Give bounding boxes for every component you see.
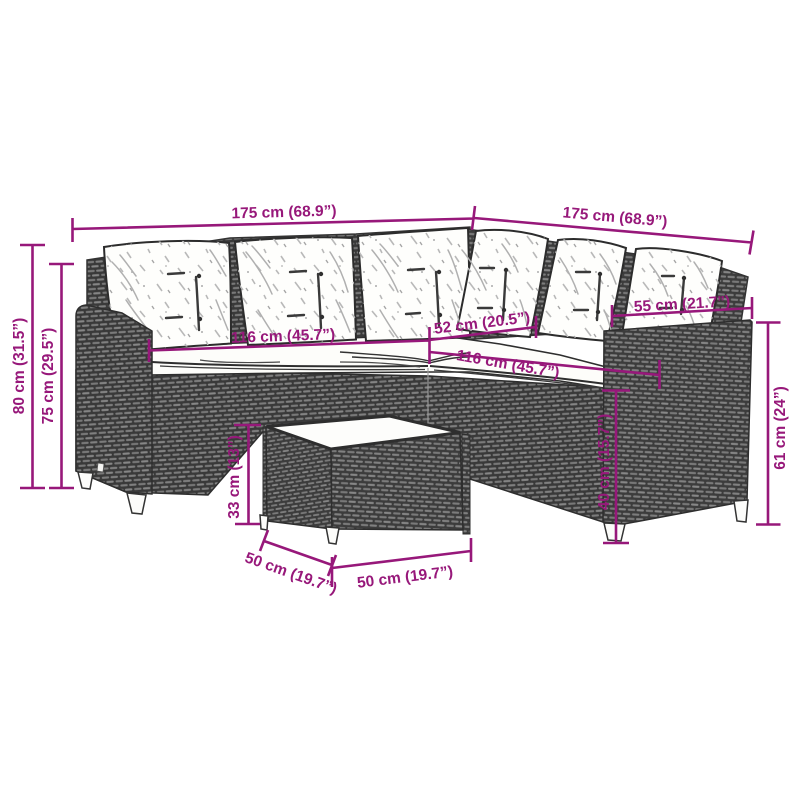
svg-text:40 cm (15.7”): 40 cm (15.7”): [596, 414, 613, 511]
svg-text:75 cm (29.5”): 75 cm (29.5”): [40, 328, 57, 425]
svg-text:61 cm (24”): 61 cm (24”): [772, 386, 789, 470]
svg-text:33 cm (13”): 33 cm (13”): [226, 435, 243, 519]
svg-text:116 cm (45.7”): 116 cm (45.7”): [231, 326, 336, 347]
svg-text:175 cm (68.9”): 175 cm (68.9”): [231, 203, 337, 223]
svg-text:80 cm (31.5”): 80 cm (31.5”): [11, 318, 28, 415]
